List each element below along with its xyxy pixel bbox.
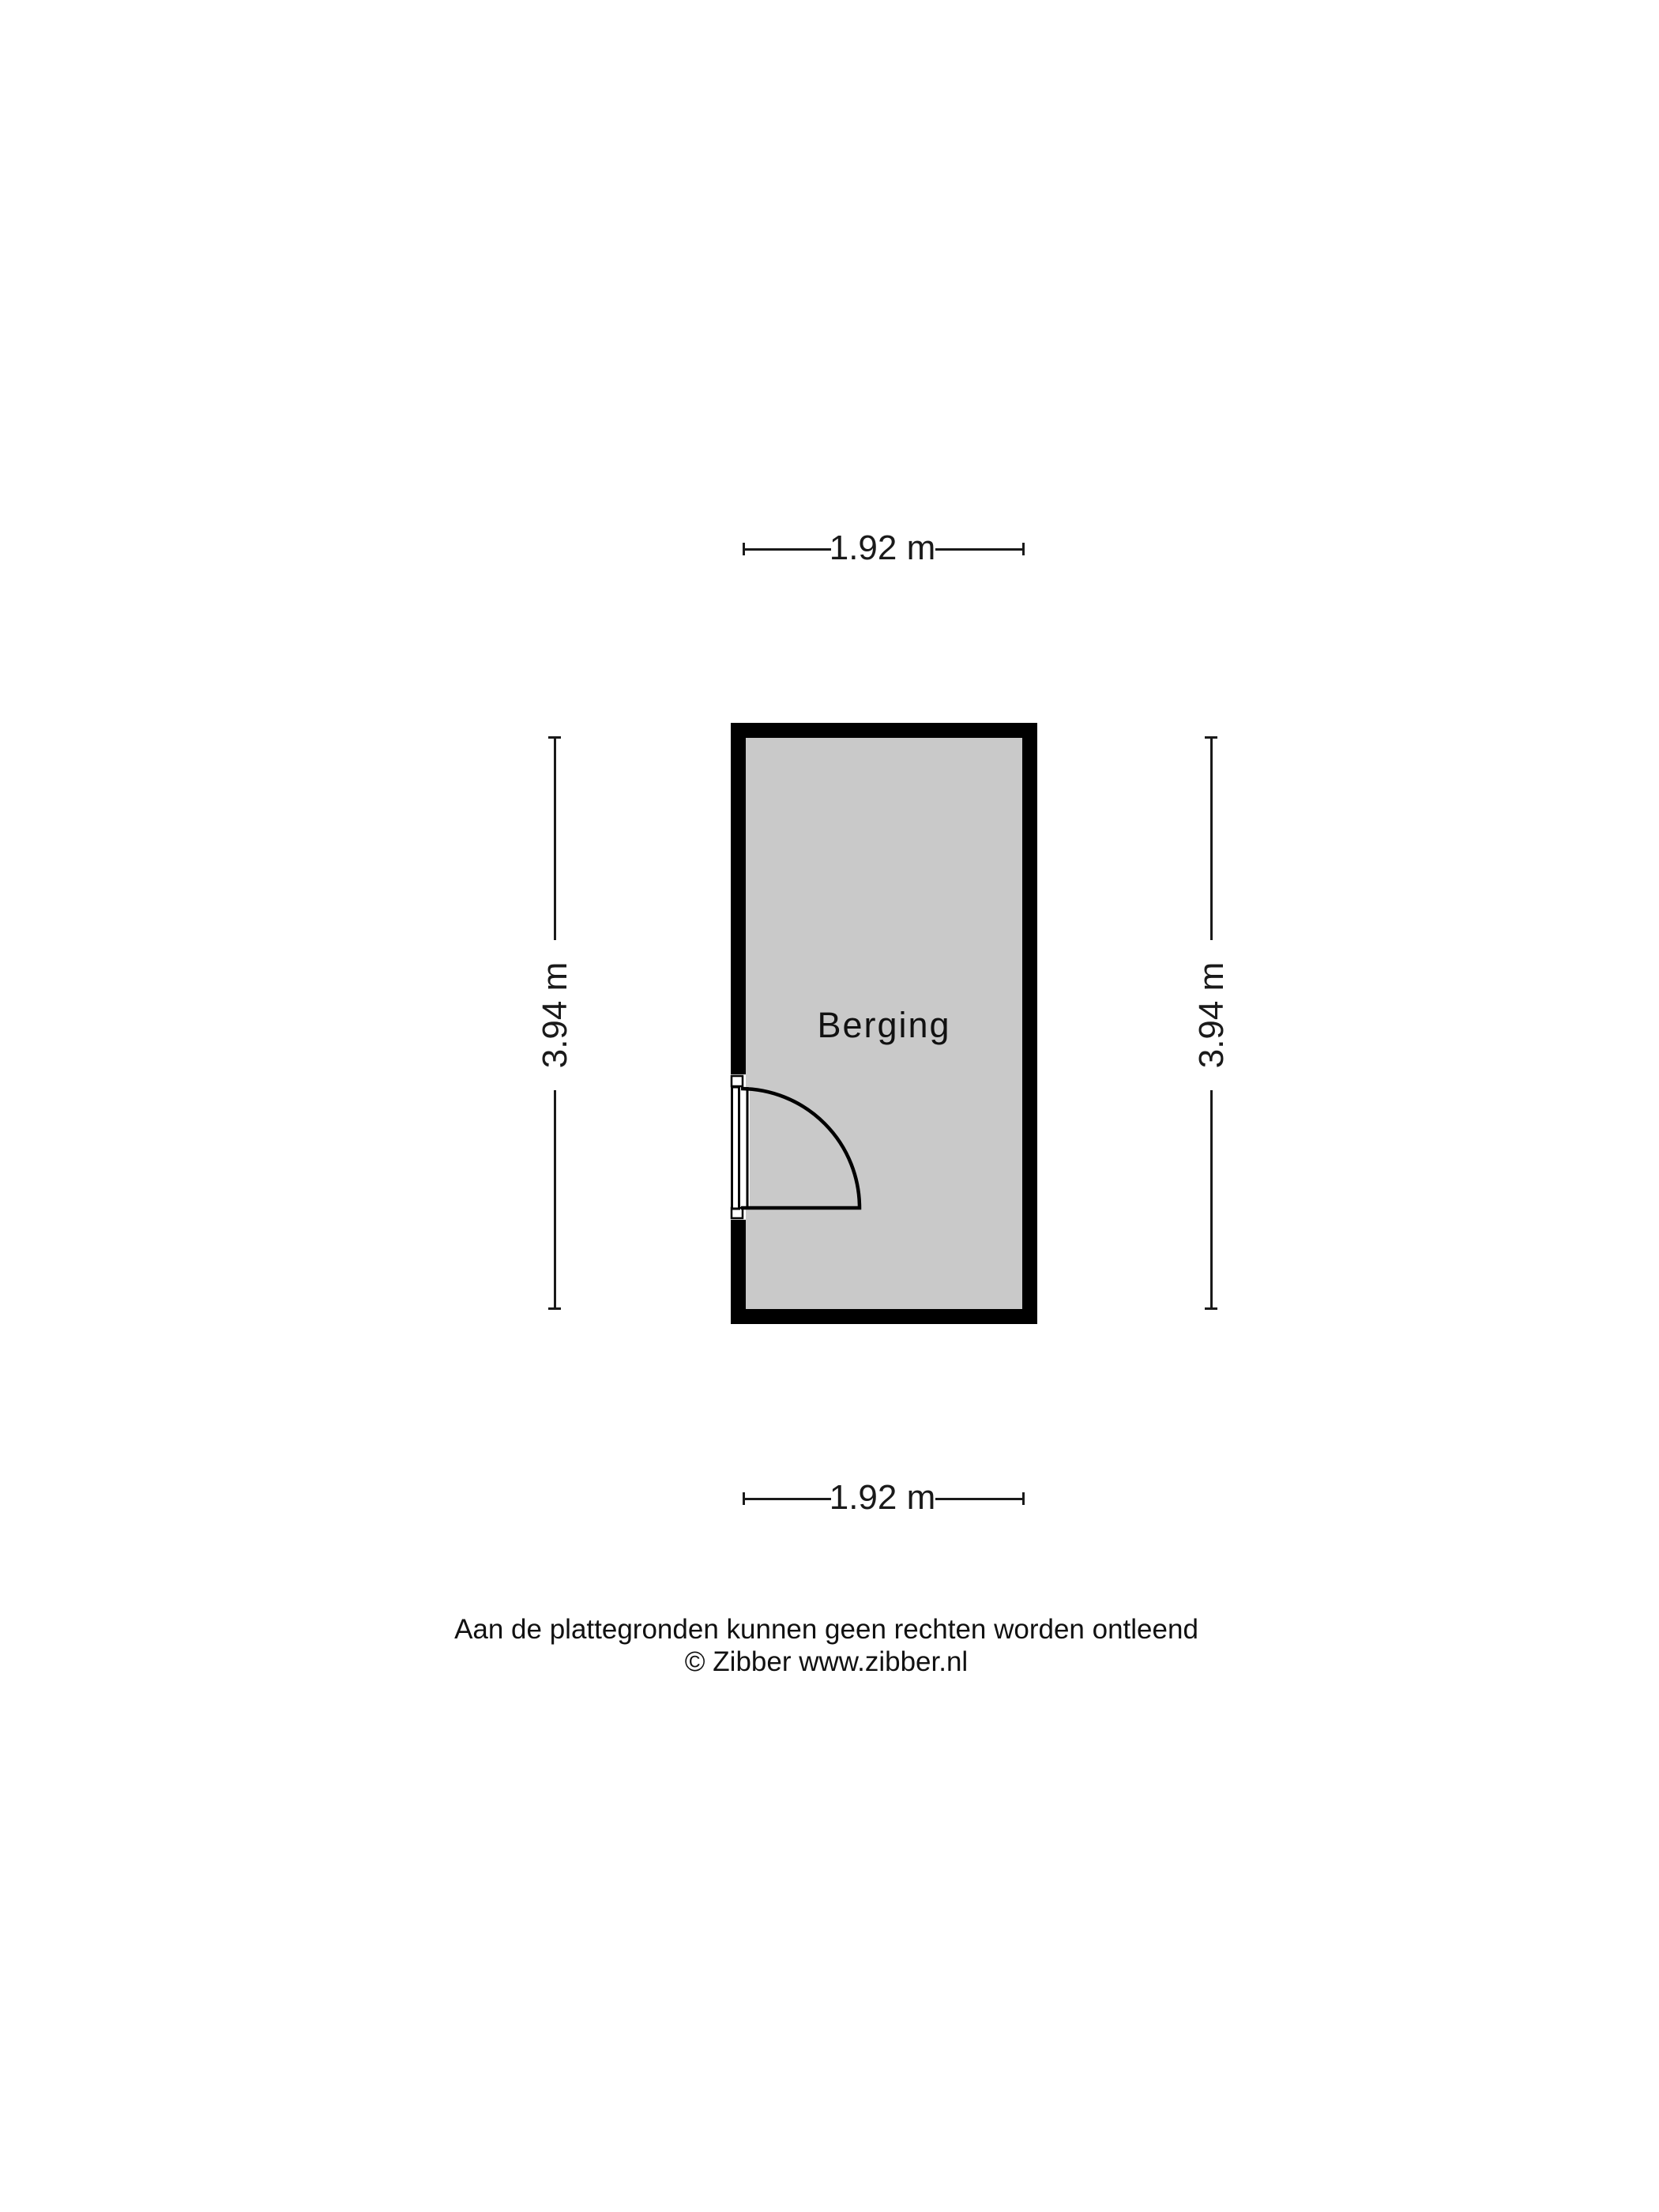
dimension-tick <box>548 1307 561 1310</box>
dimension-label-top: 1.92 m <box>823 528 942 569</box>
dimension-label-bottom: 1.92 m <box>823 1477 942 1518</box>
dimension-line <box>743 1498 831 1500</box>
dimension-line <box>935 548 1024 551</box>
dimension-line <box>554 737 556 940</box>
floorplan-page: 1.92 m 3.94 m 3.94 m Berging <box>0 0 1659 2212</box>
door-jamb-top <box>732 1076 743 1086</box>
dimension-tick <box>1205 1307 1217 1310</box>
dimension-label-right: 3.94 m <box>1192 940 1232 1090</box>
dimension-tick <box>1022 543 1025 555</box>
dimension-tick <box>1022 1492 1025 1505</box>
room-label: Berging <box>805 1004 963 1047</box>
dimension-line <box>743 548 831 551</box>
dimension-line <box>935 1498 1024 1500</box>
dimension-line <box>1210 737 1213 940</box>
door <box>723 1068 873 1226</box>
door-leaf <box>732 1087 739 1209</box>
dimension-line <box>1210 1090 1213 1309</box>
copyright-text: © Zibber www.zibber.nl <box>0 1646 1653 1678</box>
dimension-line <box>554 1090 556 1309</box>
disclaimer-text: Aan de plattegronden kunnen geen rechten… <box>0 1613 1653 1646</box>
dimension-label-left: 3.94 m <box>536 940 575 1090</box>
door-swing-arc <box>741 1089 860 1208</box>
footer: Aan de plattegronden kunnen geen rechten… <box>0 1613 1653 1678</box>
